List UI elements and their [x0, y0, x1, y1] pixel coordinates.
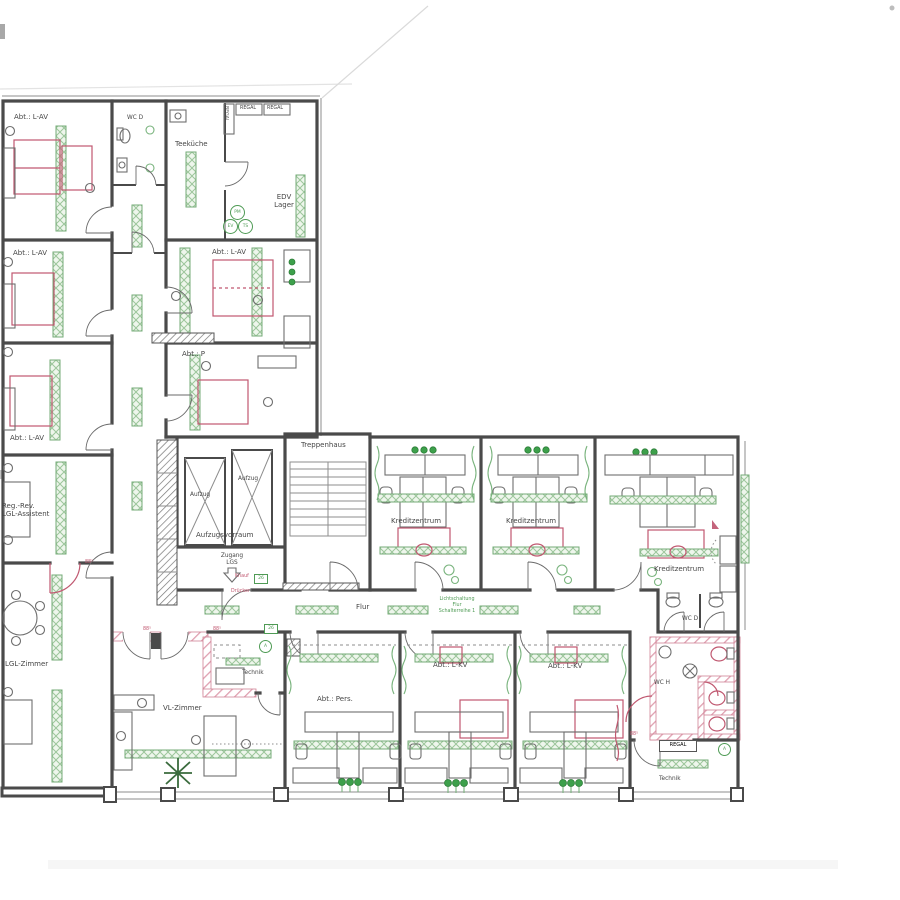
room-label-abt-lav-2: Abt.: L-AV [13, 249, 47, 257]
annotation-box-26-a: 26 [254, 574, 268, 584]
shelf-label-regal-vertical: REGAL [223, 106, 229, 136]
symbol-pm-circle: PM [230, 205, 245, 220]
annotation-druecker: Drücker [231, 589, 250, 595]
floor-plan-drawing [0, 0, 900, 900]
annotation-door-width-3: 88⁵ [213, 627, 221, 633]
annotation-door-width-4: 88⁵ [630, 732, 638, 738]
room-label-teekueche: Teeküche [175, 140, 208, 148]
room-label-abt-lkv-2: Abt.: L-KV [548, 662, 582, 670]
room-label-treppenhaus: Treppenhaus [301, 441, 346, 449]
room-label-aufzugsvorraum: Aufzugsvorraum [196, 531, 254, 539]
annotation-knauf: Knauf [235, 574, 249, 580]
room-label-wc-h: WC H [654, 680, 670, 687]
shelf-label-regal-3: REGAL [659, 740, 697, 752]
room-label-abt-lkv-1: Abt.: L-KV [433, 661, 467, 669]
shelf-label-regal-1: REGAL [240, 106, 256, 112]
room-label-vl-zimmer: VL-Zimmer [163, 704, 202, 712]
symbol-a-circle-1: A [259, 640, 272, 653]
room-label-abt-p: Abt.: P [182, 350, 205, 358]
room-label-wc-d-rechts: WC D [682, 616, 698, 623]
annotation-lichtschaltung: Lichtschaltung Flur Schalterreihe 1 [428, 597, 486, 614]
shelf-label-regal-2: REGAL [267, 106, 283, 112]
room-label-lgl-zimmer: LGL-Zimmer [5, 660, 48, 668]
room-label-kreditzentrum-1: Kreditzentrum [391, 517, 441, 525]
room-label-aufzug-1: Aufzug [190, 492, 210, 499]
room-label-edv-lager: EDV Lager [262, 193, 306, 210]
room-label-abt-lav-4: Abt.: L-AV [10, 434, 44, 442]
room-label-flur: Flur [356, 603, 369, 611]
doors [50, 162, 358, 620]
abt-lkv-room [402, 632, 512, 793]
symbol-ev-circle: EV [223, 219, 238, 234]
annotation-door-width-1: 88⁵ [85, 560, 93, 566]
room-label-reg-rev: Reg.-Rev. LGL-Assistent [2, 502, 49, 519]
room-label-aufzug-2: Aufzug [238, 476, 258, 483]
room-label-technik-mitte: Technik [242, 670, 264, 677]
abt-pers-room [287, 632, 401, 792]
room-label-abt-lav-1: Abt.: L-AV [14, 113, 48, 121]
floor-plan-scan: Abt.: L-AV WC D Teeküche REGAL REGAL REG… [0, 0, 900, 900]
symbol-a-circle-2: A [718, 743, 731, 756]
room-label-technik-rechts: Technik [659, 776, 681, 783]
room-label-abt-lav-3: Abt.: L-AV [212, 248, 246, 256]
room-label-kreditzentrum-2: Kreditzentrum [506, 517, 556, 525]
annotation-door-width-2: 88⁵ [143, 627, 151, 633]
walls [2, 96, 745, 802]
fire-walls [112, 631, 740, 740]
room-label-kreditzentrum-3: Kreditzentrum [654, 565, 704, 573]
symbol-ts-circle: TS [238, 219, 253, 234]
room-label-wc-d-top: WC D [127, 115, 143, 122]
annotation-box-26-b: 26 [264, 624, 278, 634]
room-label-abt-pers: Abt.: Pers. [317, 695, 353, 703]
label-zugang-lgs: Zugang LGS [210, 553, 254, 567]
